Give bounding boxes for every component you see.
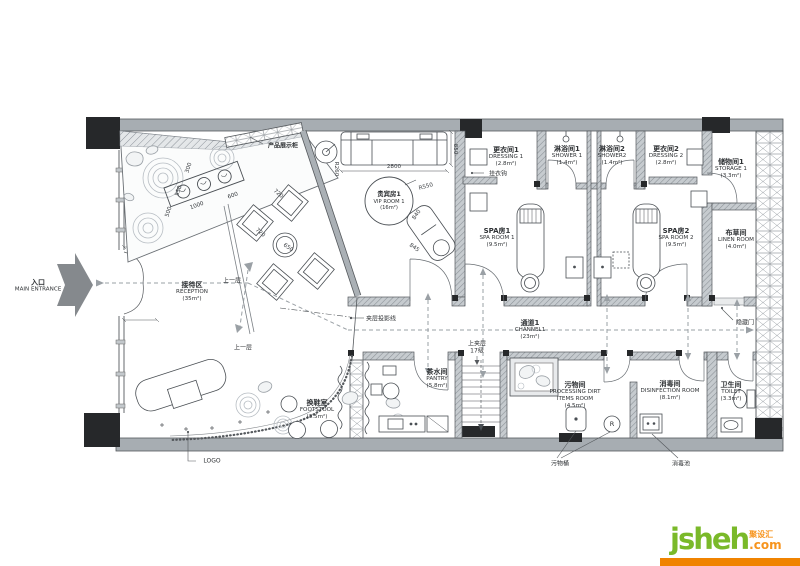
annotation-logo: LOGO <box>203 458 220 465</box>
room-label-spa1: SPA房1 SPA ROOM 1 (9.5m²) <box>479 227 514 249</box>
jsheh-logo[interactable]: jsheh 聚设汇 .com <box>670 528 782 551</box>
annotation-up-one-level-1: 上一层 <box>223 276 241 285</box>
annotation-mezzanine-projection: 夹层投影线 <box>366 314 396 323</box>
dim-table-radius: R260 <box>333 162 339 177</box>
room-label-vip: 贵宾房1 VIP ROOM 1 (16m²) <box>373 191 404 211</box>
room-label-channel1: 通道1 CHANNEL1 (23m²) <box>515 319 546 341</box>
annotation-mezzanine-steps: 17级 <box>470 346 484 355</box>
annotation-r-mark: R <box>610 420 615 428</box>
entrance-arrow-icon <box>57 253 93 317</box>
spa-bed-1 <box>517 204 544 292</box>
dim-sofa-width: 2800 <box>387 164 401 170</box>
room-label-footstool: 换鞋室 FOOTSTOOL (3.5m²) <box>300 399 334 421</box>
room-label-shower2: 淋浴间2 SHOWER2 (1.4m²) <box>598 145 627 167</box>
room-label-storage1: 储物间1 STORAGE 1 (3.3m²) <box>715 158 747 180</box>
room-label-reception: 接待区 RECEPTION (35m²) <box>176 281 208 303</box>
room-label-linen: 布草间 LINEN ROOM (4.0m²) <box>718 229 754 251</box>
spa-bed-2 <box>633 204 660 292</box>
shower-head-icon <box>563 131 623 142</box>
room-label-dirt: 污物间 PROCESSING DIRT ITEMS ROOM (4.5m²) <box>549 381 600 410</box>
annotation-product-display: 产品展示柜 <box>268 141 298 150</box>
logo-tld: .com <box>749 539 781 551</box>
floor-plan-page: 入口 MAIN ENTRANCE 接待区 RECEPTION (35m²) 贵宾… <box>0 0 800 566</box>
room-label-disinfection: 消毒间 DISINFECTION ROOM (8.1m²) <box>641 380 700 402</box>
stairs <box>462 360 500 431</box>
annotation-disinfection-pool: 消毒池 <box>672 459 690 468</box>
annotation-up-one-level-2: 上一层 <box>234 343 252 352</box>
logo-bar <box>660 558 800 566</box>
annotation-hidden-door: 隐藏门 <box>736 318 754 327</box>
entrance-en: MAIN ENTRANCE <box>15 287 62 294</box>
curtain-pantry <box>365 362 369 434</box>
room-label-dressing2: 更衣间2 DRESSING 2 (2.8m²) <box>649 145 683 167</box>
room-label-entrance: 入口 MAIN ENTRANCE <box>15 278 62 293</box>
arrow-heads <box>96 262 754 378</box>
room-label-toilet: 卫生间 TOILET (3.3m²) <box>721 381 742 403</box>
reception-desk <box>132 356 231 419</box>
floor-plan-drawing <box>0 0 800 566</box>
dim-sofa-depth: 850 <box>452 144 458 155</box>
curtain-footstool <box>338 366 342 429</box>
entrance-zh: 入口 <box>15 278 62 286</box>
annotation-dirt-bucket: 污物桶 <box>551 459 569 468</box>
room-label-spa2: SPA房2 SPA ROOM 2 (9.5m²) <box>658 227 693 249</box>
room-label-pantry: 茶水间 PANTRY (5.8m²) <box>426 368 447 390</box>
zen-garden <box>120 123 338 334</box>
room-label-shower1: 淋浴间1 SHOWER 1 (1.4m²) <box>552 145 582 167</box>
annotation-coat-hook: 挂衣钩 <box>489 169 507 178</box>
logo-name: jsheh <box>670 528 748 551</box>
toilet-sink <box>721 418 742 432</box>
room-label-dressing1: 更衣间1 DRESSING 1 (2.8m²) <box>489 146 523 168</box>
hidden-door <box>714 298 744 305</box>
